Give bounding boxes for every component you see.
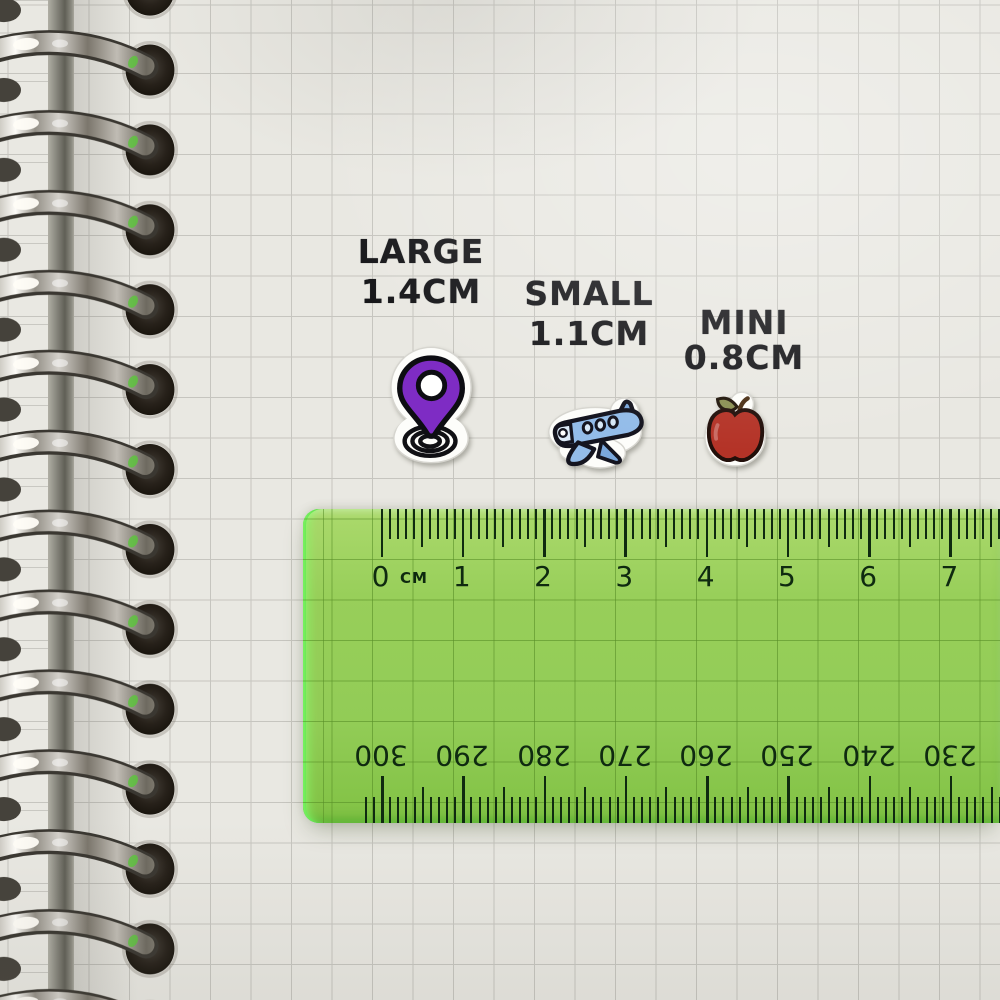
ruler-tick [974,509,976,539]
ruler-unit-label: CM [400,569,428,587]
ruler-tick [568,797,570,823]
location-pin-sticker [388,346,476,464]
ruler-tick [462,776,465,823]
ruler-tick [722,509,724,539]
ruler-tick [494,509,496,539]
ruler-tick [861,797,863,823]
ruler-tick [592,509,594,539]
ruler-tick [397,509,399,539]
ruler-tick [576,797,578,823]
notebook-photo: LARGE 1.4CM SMALL 1.1CM MINI 0.8CM [0,0,1000,1000]
ruler-tick [600,797,602,823]
ruler-tick [470,509,472,539]
ruler-tick [665,787,667,823]
ruler-tick [926,797,928,823]
ruler-tick [641,797,643,823]
ruler-tick [836,797,838,823]
plane-window [583,423,592,433]
ruler-tick [917,509,919,539]
ruler-tick [413,509,415,539]
ruler-tick [763,797,765,823]
size-name-text: MINI [684,305,805,340]
ruler-tick [414,797,416,823]
ruler-tick [828,787,830,823]
ruler-tick [511,509,513,539]
ruler-tick [389,797,391,823]
ruler-tick [787,509,790,557]
ruler-tick [779,797,781,823]
ruler-tick [567,509,569,539]
ruler-tick [600,509,602,539]
ruler-tick [779,509,781,539]
ruler-tick [551,509,553,539]
ruler-tick [877,797,879,823]
ruler-tick [486,509,488,539]
pin-hole [418,372,444,398]
ruler-tick [836,509,838,539]
ruler-tick [690,797,692,823]
ruler-tick [738,509,740,539]
ruler-tick [422,787,424,823]
ruler-tick [868,509,871,557]
plane-window [609,417,618,427]
size-value-text: 1.4CM [358,272,485,312]
ruler-tick [454,509,456,539]
ruler-tick [795,509,797,539]
ruler-tick [941,509,943,539]
ruler-tick [991,787,993,823]
ruler-tick [771,797,773,823]
plane-window [596,420,605,430]
ruler-tick [616,509,618,539]
ruler-tick [487,797,489,823]
ruler-tick [405,797,407,823]
ruler-tick [365,797,367,823]
ruler-tick [925,509,927,539]
ruler-tick [381,776,384,823]
ruler-tick [674,797,676,823]
ruler-tick [730,509,732,539]
size-name-text: SMALL [524,274,653,314]
ruler-tick [503,787,505,823]
ruler-tick [617,797,619,823]
ruler-tick [893,797,895,823]
ruler-tick [502,509,504,547]
ruler-tick [462,509,465,557]
size-label-small: SMALL 1.1CM [524,274,653,354]
ruler-tick [673,509,675,539]
ruler-tick [942,797,944,823]
ruler-tick [747,787,749,823]
ruler-cm-number: 5 [778,563,796,591]
ruler-tick [909,509,911,547]
airplane-sticker [545,396,649,470]
ruler-tick [608,509,610,539]
ruler-tick [584,509,586,547]
ruler-cm-number: 6 [859,563,877,591]
ruler-tick [771,509,773,539]
ruler-tick [511,797,513,823]
ruler-tick [796,797,798,823]
ruler-tick [527,797,529,823]
ruler-tick [649,509,651,539]
ruler-tick [649,797,651,823]
ruler-tick [421,509,423,547]
ruler-mm-number: 240 [842,741,895,769]
ruler-tick [974,797,976,823]
ruler-tick [543,509,546,557]
ruler-tick [527,509,529,539]
size-label-large: LARGE 1.4CM [358,232,485,312]
ruler-cm-number: 4 [697,563,715,591]
ruler-tick [632,509,634,539]
ruler-tick [949,509,952,557]
ruler-tick [731,797,733,823]
ruler-tick [820,797,822,823]
ruler-tick [381,509,384,557]
ruler-tick [966,797,968,823]
ruler-tick [819,509,821,539]
ruler-tick [430,797,432,823]
ruler-tick [633,797,635,823]
ruler-tick [787,776,790,823]
ruler-tick [844,509,846,539]
ruler-tick [479,797,481,823]
ruler-tick [917,797,919,823]
ruler-tick [495,797,497,823]
ruler-tick [901,509,903,539]
ruler-tick [559,509,561,539]
ruler-tick [706,509,709,557]
ruler-tick [739,797,741,823]
ruler-tick [966,509,968,539]
size-name-text: LARGE [358,232,485,272]
ruler-tick [869,776,872,823]
ruler-tick [560,797,562,823]
ruler-tick [804,797,806,823]
ruler-tick [990,509,992,547]
ruler-mm-number: 270 [598,741,651,769]
ruler-tick [714,797,716,823]
ruler-tick [934,797,936,823]
ruler-tick [609,797,611,823]
ruler-cm-number: 2 [534,563,552,591]
ruler-tick [535,509,537,539]
ruler-tick [519,797,521,823]
ruler-tick [446,509,448,539]
ruler-tick [389,509,391,539]
ruler-tick [901,797,903,823]
ruler-tick [811,509,813,539]
size-label-mini: MINI 0.8CM [684,305,805,375]
ruler-tick [706,776,709,823]
ruler-tick [958,509,960,539]
ruler-mm-number: 290 [436,741,489,769]
ruler-tick [689,509,691,539]
ruler-tick [754,509,756,539]
ruler-tick [535,797,537,823]
ruler-tick [982,509,984,539]
ruler-tick [909,787,911,823]
ruler-tick [893,509,895,539]
ruler-tick [852,509,854,539]
ruler-tick [746,509,748,547]
ruler-tick [446,797,448,823]
ruler-cm-number: 0 [372,563,390,591]
ruler-mm-number: 260 [679,741,732,769]
ruler-tick [860,509,862,539]
ruler-cm-number: 1 [453,563,471,591]
ruler-tick [714,509,716,539]
ruler-tick [755,797,757,823]
ruler-cm-number: 7 [941,563,959,591]
ruler-tick [438,797,440,823]
ruler-tick [641,509,643,539]
ruler-tick [552,797,554,823]
ruler-mm-number: 230 [923,741,976,769]
ruler-tick [681,509,683,539]
ruler-tick [698,797,700,823]
size-value-text: 0.8CM [684,340,805,375]
ruler-tick [950,776,953,823]
ruler-mm-number: 300 [354,741,407,769]
ruler-tick [844,797,846,823]
ruler-tick [933,509,935,539]
size-value-text: 1.1CM [524,314,653,354]
ruler-tick [657,509,659,539]
ruler-tick [625,776,628,823]
ruler-tick [429,509,431,539]
ruler-tick [478,509,480,539]
ruler-tick [454,797,456,823]
ruler-tick [665,509,667,547]
ruler: CM 01234567 300290280270260250240230 [303,509,1000,823]
ruler-tick [405,509,407,539]
ruler-tick [544,776,547,823]
ruler-tick [697,509,699,539]
ruler-tick [682,797,684,823]
ruler-tick [592,797,594,823]
ruler-tick [519,509,521,539]
ruler-tick [803,509,805,539]
ruler-tick [885,797,887,823]
ruler-tick [884,509,886,539]
ruler-mm-number: 280 [517,741,570,769]
ruler-tick [624,509,627,557]
ruler-tick [584,787,586,823]
ruler-tick [763,509,765,539]
ruler-mm-number: 250 [761,741,814,769]
ruler-tick [470,797,472,823]
ruler-tick [657,797,659,823]
ruler-tick [812,797,814,823]
ruler-tick [397,797,399,823]
ruler-tick [876,509,878,539]
spiral-binding [0,0,195,1000]
ruler-tick [437,509,439,539]
ruler-tick [373,797,375,823]
plane-cockpit-window [559,429,567,437]
ruler-tick [958,797,960,823]
apple-sticker [702,390,770,468]
ruler-tick [852,797,854,823]
ruler-tick [722,797,724,823]
ruler-tick [828,509,830,547]
ruler-cm-number: 3 [615,563,633,591]
ruler-tick [576,509,578,539]
ruler-tick [982,797,984,823]
